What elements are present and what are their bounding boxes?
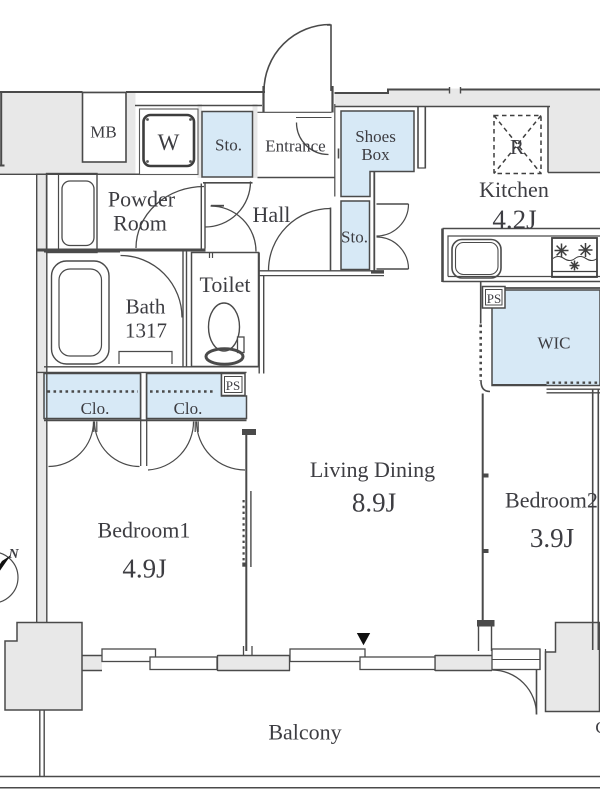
svg-text:8.9J: 8.9J <box>352 488 396 518</box>
svg-text:Clo.: Clo. <box>81 399 110 418</box>
svg-text:Entrance: Entrance <box>265 137 325 156</box>
svg-text:PS: PS <box>487 291 501 306</box>
svg-text:1317: 1317 <box>125 319 167 343</box>
svg-text:Living Dining: Living Dining <box>310 457 435 482</box>
svg-text:Toilet: Toilet <box>199 272 250 297</box>
svg-text:Bath: Bath <box>126 295 166 319</box>
svg-text:3.9J: 3.9J <box>530 523 574 553</box>
svg-text:MB: MB <box>90 123 116 142</box>
svg-text:Bedroom1: Bedroom1 <box>98 518 191 543</box>
svg-text:Hall: Hall <box>253 202 291 227</box>
svg-text:Powder: Powder <box>108 187 176 212</box>
svg-text:N: N <box>7 547 19 562</box>
svg-text:W: W <box>158 130 180 155</box>
svg-text:Kitchen: Kitchen <box>479 177 549 202</box>
svg-text:Box: Box <box>361 145 390 164</box>
svg-text:PS: PS <box>226 378 240 393</box>
svg-text:Bedroom2: Bedroom2 <box>505 488 598 513</box>
svg-text:Shoes: Shoes <box>355 127 396 146</box>
svg-text:C: C <box>595 718 600 737</box>
svg-text:4.2J: 4.2J <box>492 205 536 235</box>
svg-text:Clo.: Clo. <box>174 399 203 418</box>
svg-text:Sto.: Sto. <box>215 136 242 155</box>
svg-text:4.9J: 4.9J <box>122 554 166 584</box>
svg-text:Balcony: Balcony <box>268 720 341 745</box>
svg-text:WIC: WIC <box>537 334 570 353</box>
svg-text:Room: Room <box>113 211 167 236</box>
svg-text:Sto.: Sto. <box>341 228 368 247</box>
svg-text:R: R <box>510 135 524 159</box>
